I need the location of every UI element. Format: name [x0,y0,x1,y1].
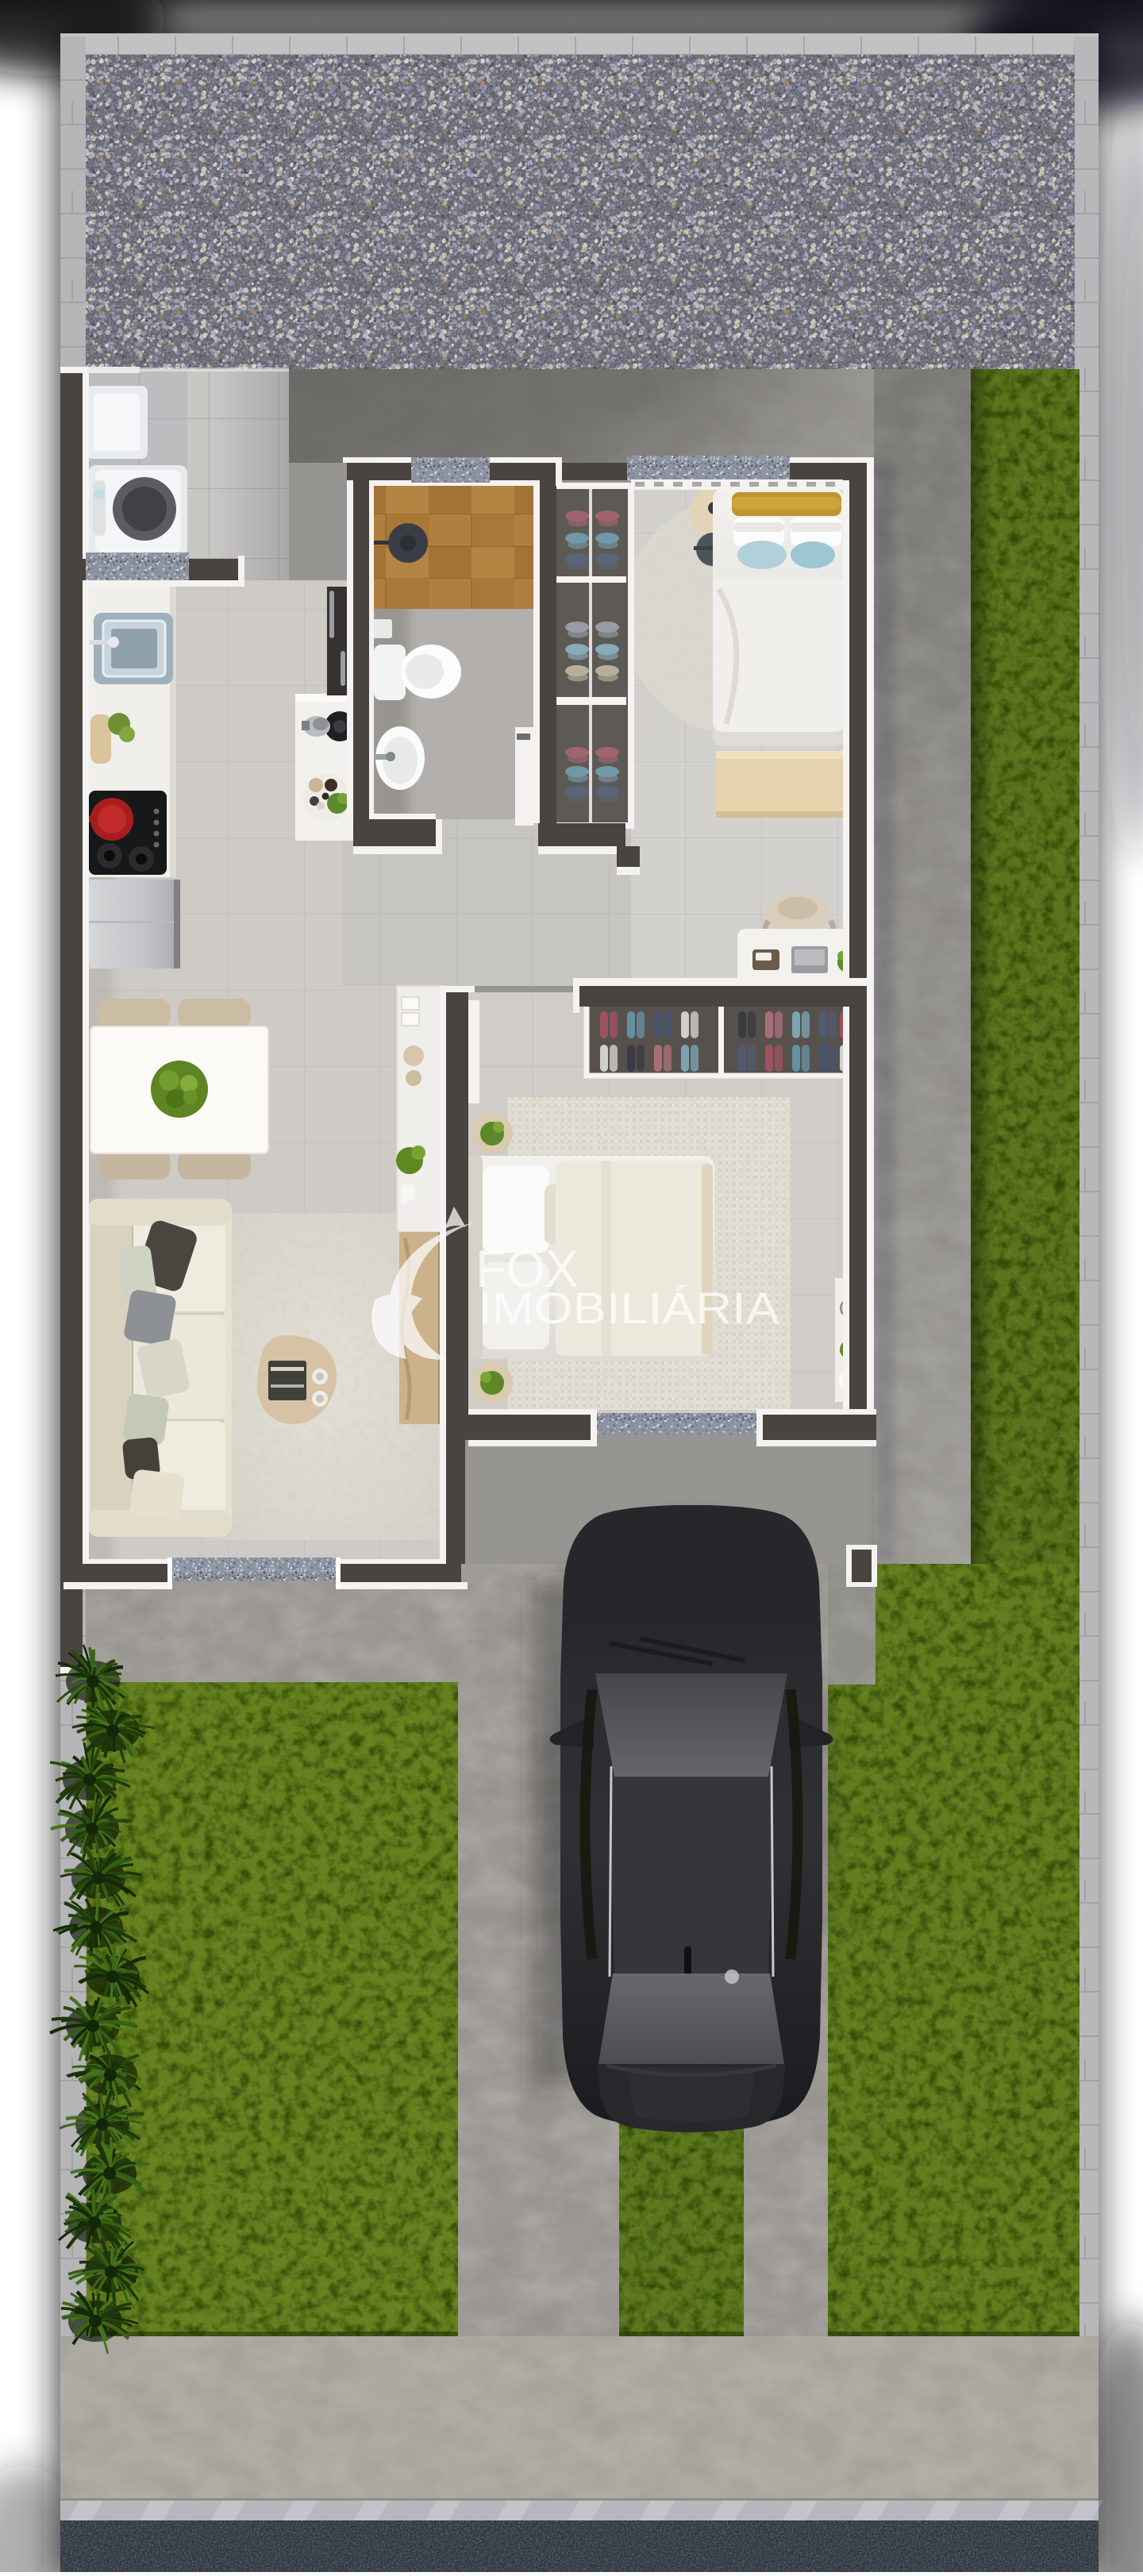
svg-text:IMOBILIÁRIA: IMOBILIÁRIA [478,1283,780,1333]
